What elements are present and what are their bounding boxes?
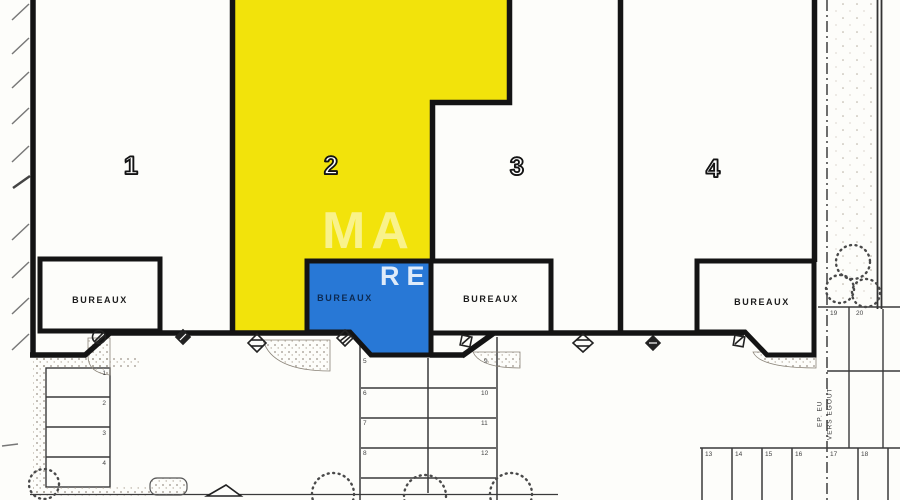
unit-3-label: 3 xyxy=(497,153,537,182)
stall-number: 10 xyxy=(481,390,488,397)
parking-left-block xyxy=(46,368,110,487)
site-plan-drawing xyxy=(0,0,900,500)
utility-drain-icon xyxy=(248,334,266,352)
office-label-unit2: BUREAUX xyxy=(295,293,395,303)
stall-number: 6 xyxy=(363,390,367,397)
stall-number: 2 xyxy=(92,400,106,407)
office-label-unit1: BUREAUX xyxy=(50,295,150,305)
street-annotation-line2: VERS EGOUT xyxy=(825,388,835,441)
stall-number: 11 xyxy=(481,420,488,427)
office-label-unit3: BUREAUX xyxy=(441,294,541,304)
stall-number: 5 xyxy=(363,358,367,365)
street-annotation-line1: EP. EU xyxy=(815,388,825,441)
boundary-hatching xyxy=(2,4,30,446)
road-edge-double-line xyxy=(878,0,882,309)
unit-1-label: 1 xyxy=(111,152,151,181)
direction-triangle xyxy=(207,485,241,496)
office-label-unit4: BUREAUX xyxy=(712,297,812,307)
kerb-speckle-bottom xyxy=(33,486,150,497)
utility-valve-icon-2 xyxy=(646,336,660,350)
stall-number: 4 xyxy=(92,460,106,467)
stall-number: 1 xyxy=(92,370,106,377)
stall-number: 7 xyxy=(363,420,367,427)
stall-number: 17 xyxy=(830,451,837,458)
parking-central-block xyxy=(360,337,497,500)
site-plan: 1 2 3 4 BUREAUX BUREAUX BUREAUX BUREAUX … xyxy=(0,0,900,500)
office-box-unit4 xyxy=(697,261,814,355)
stall-number: 9 xyxy=(484,358,488,365)
utility-hatch-icon xyxy=(460,335,472,347)
utility-hatch-icon-2 xyxy=(733,335,745,347)
stall-number: 18 xyxy=(861,451,868,458)
unit-2-label: 2 xyxy=(311,152,351,181)
unit-4-label: 4 xyxy=(693,155,733,184)
kerb-speckle-left xyxy=(33,358,46,497)
stall-number: 20 xyxy=(856,310,863,317)
street-annotation: EP. EU VERS EGOUT xyxy=(792,381,858,447)
stall-number: 12 xyxy=(481,450,488,457)
watermark-line1: MA xyxy=(322,203,430,261)
stall-number: 15 xyxy=(765,451,772,458)
stall-number: 19 xyxy=(830,310,837,317)
stall-number: 13 xyxy=(705,451,712,458)
utility-drain-icon-2 xyxy=(573,334,593,352)
planter xyxy=(150,478,187,495)
stall-number: 3 xyxy=(92,430,106,437)
stall-number: 14 xyxy=(735,451,742,458)
watermark-line2: RE xyxy=(380,261,432,292)
stall-number: 16 xyxy=(795,451,802,458)
stall-number: 8 xyxy=(363,450,367,457)
right-verge xyxy=(830,3,876,303)
